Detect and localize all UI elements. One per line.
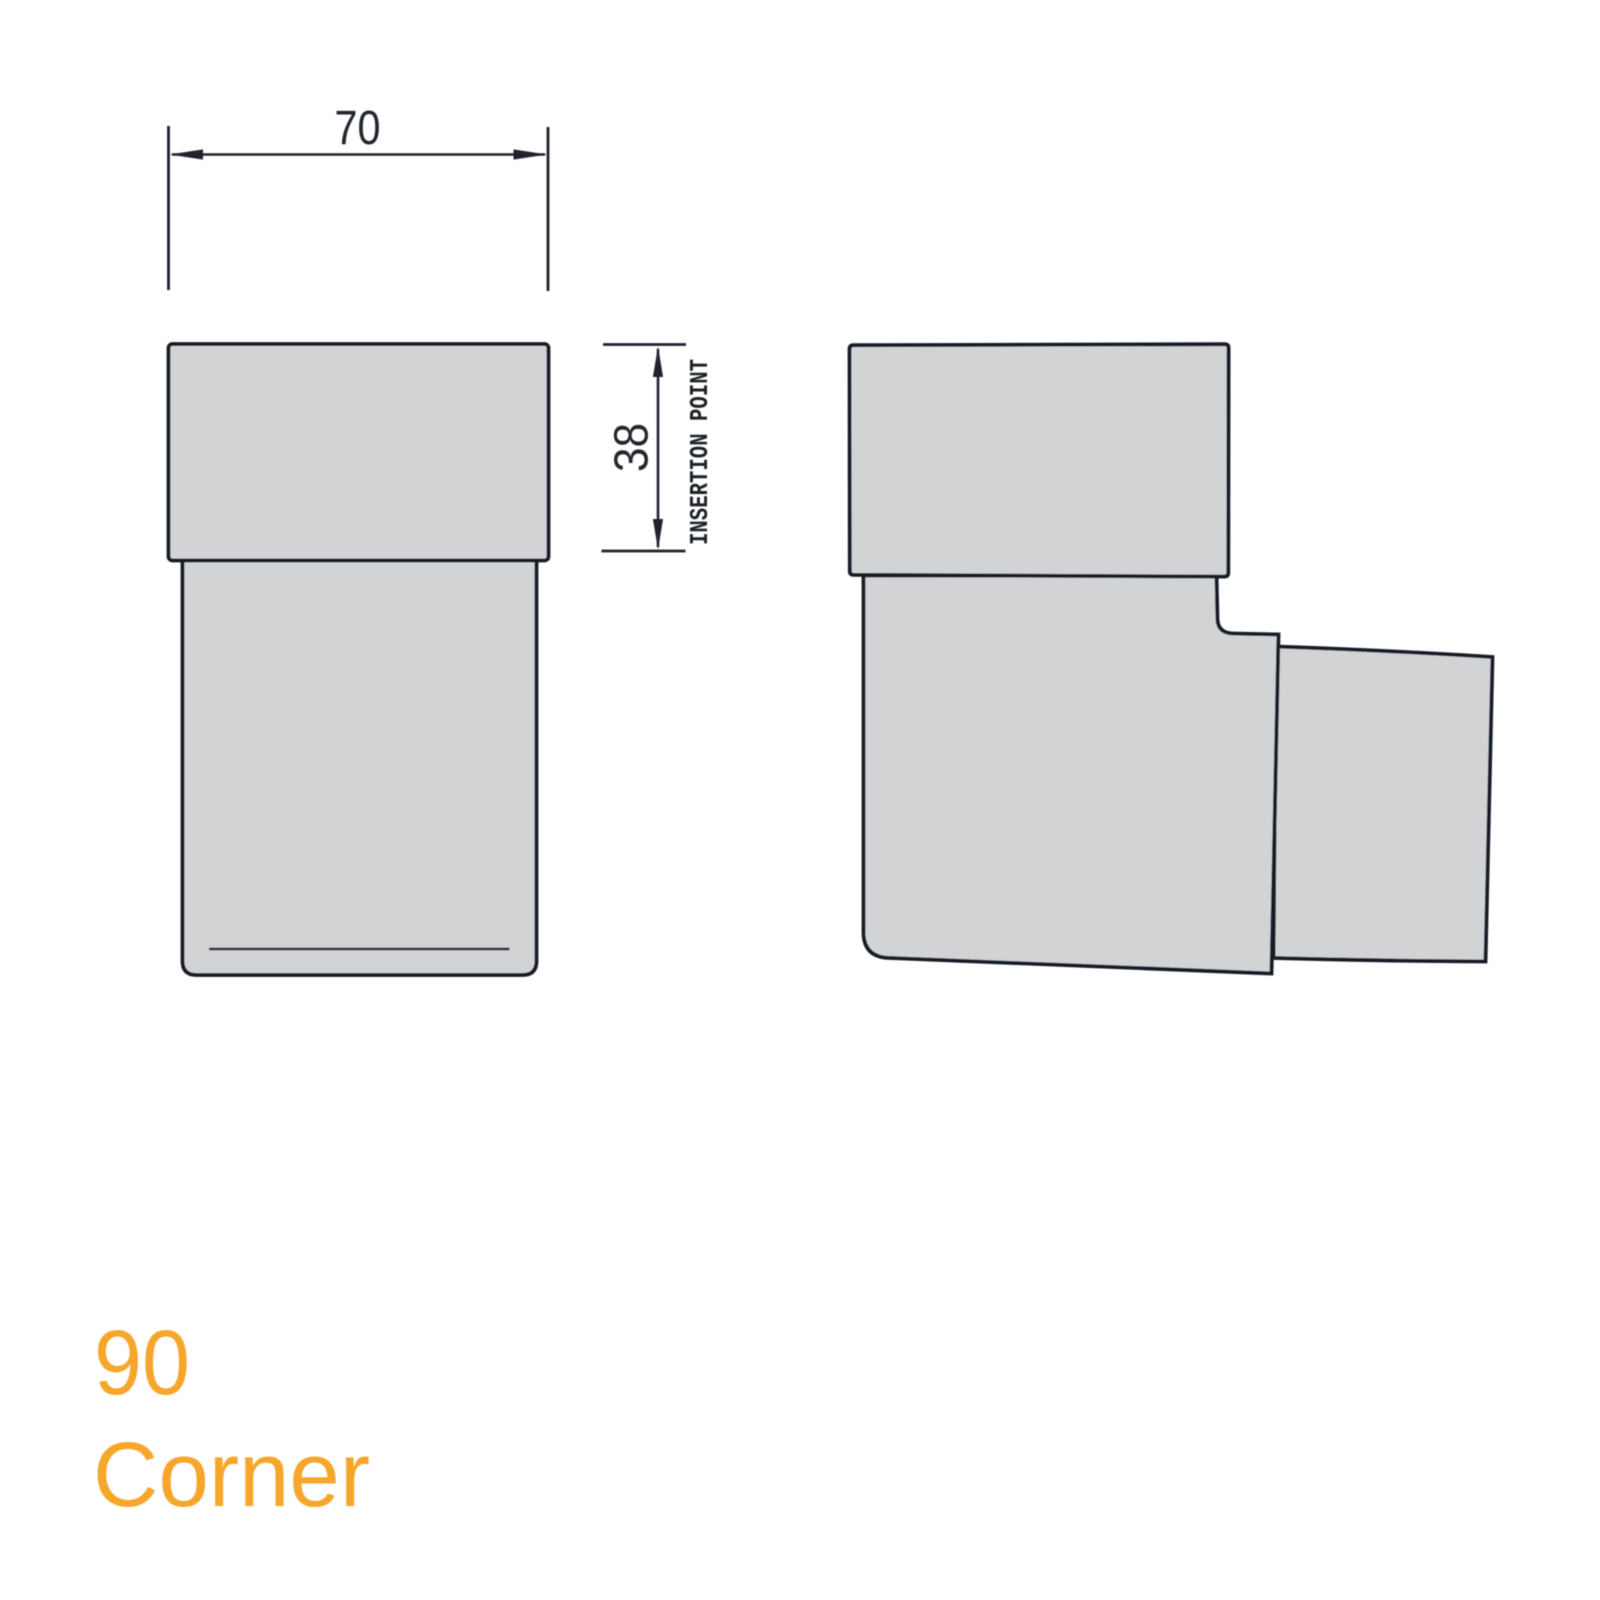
svg-text:38: 38	[606, 423, 659, 472]
svg-text:70: 70	[335, 102, 381, 155]
svg-text:90: 90	[94, 1312, 190, 1414]
svg-text:Corner: Corner	[93, 1424, 370, 1526]
svg-text:INSERTION POINT: INSERTION POINT	[685, 359, 715, 545]
